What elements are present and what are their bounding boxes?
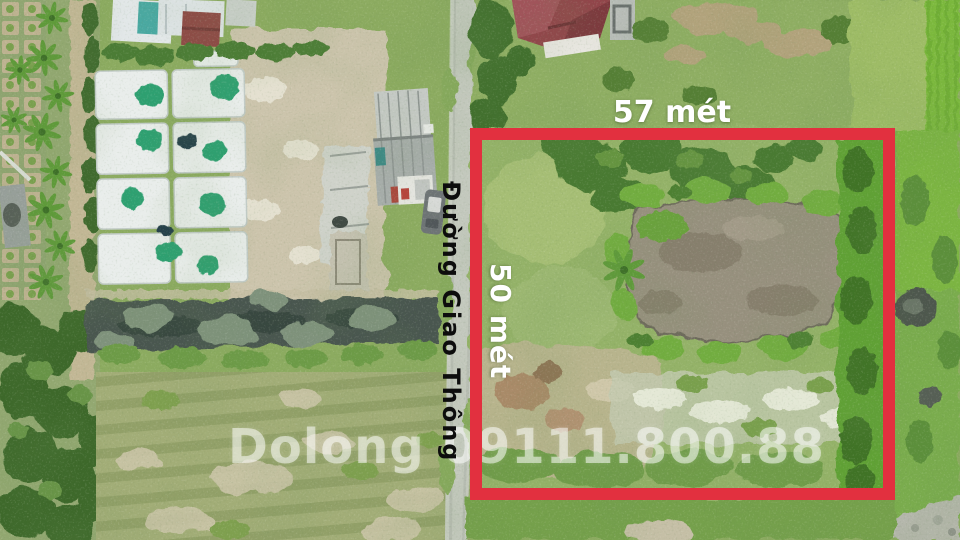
plot-height-label: 50 mét: [484, 263, 517, 379]
aerial-photo-listing: Dolong 09111.800.88 57 mét 50 mét Đường …: [0, 0, 960, 540]
plot-boundary-rectangle: [470, 128, 895, 500]
road-name-label: Đường Giao Thông: [437, 181, 465, 462]
plot-width-label: 57 mét: [612, 95, 732, 130]
